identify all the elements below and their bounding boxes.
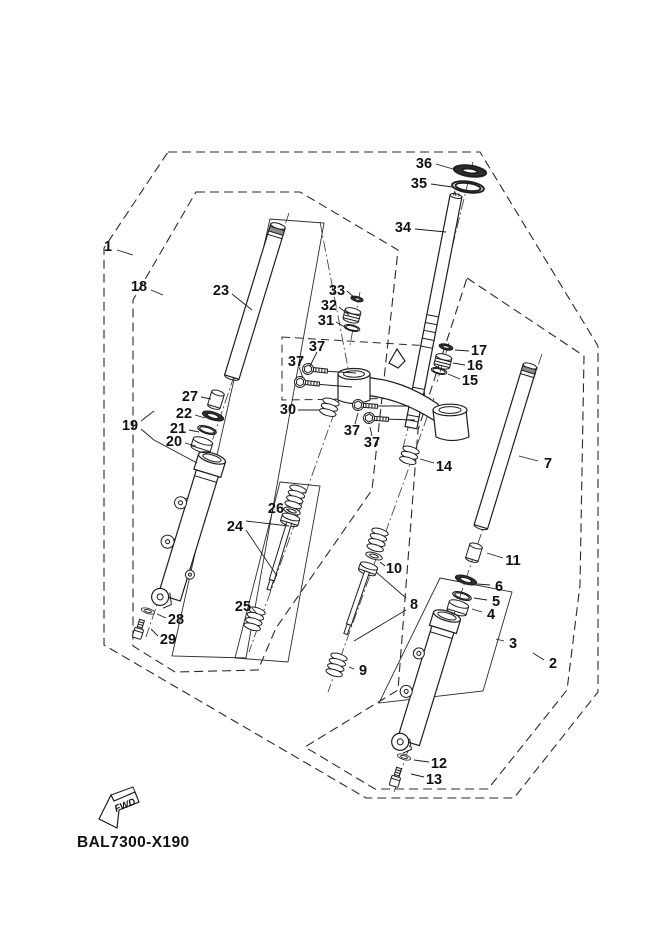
part-label-15: 15 [462, 373, 478, 389]
parts-diagram-page: FWD BAL7300-X190 11823272221201928292425… [0, 0, 661, 935]
leader-line-4 [472, 609, 482, 612]
part-28-gasket [141, 607, 156, 616]
part-label-1: 1 [104, 239, 112, 255]
leader-line-16 [453, 363, 465, 365]
part-label-25: 25 [235, 599, 251, 615]
leader-line-36 [436, 164, 453, 169]
part-label-12: 12 [431, 756, 447, 772]
leader-line-12 [414, 760, 429, 762]
clamp-fin [389, 349, 405, 368]
part-label-37: 37 [344, 423, 360, 439]
left-outer-tube-assembly [142, 446, 230, 614]
part-9-rebound-spring [325, 651, 348, 678]
part-22-oil-seal [201, 409, 224, 423]
part-label-23: 23 [213, 283, 229, 299]
part-label-22: 22 [176, 406, 192, 422]
leader-line-10 [380, 562, 385, 566]
left-fork-spring-end [284, 483, 307, 510]
part-label-27: 27 [182, 389, 198, 405]
part-label-35: 35 [411, 176, 427, 192]
leader-line-8 [354, 610, 406, 641]
fwd-label: FWD [113, 796, 137, 814]
part-7-inner-tube [473, 362, 537, 532]
part-label-29: 29 [160, 632, 176, 648]
part-37-pinch-bolt [302, 363, 328, 377]
part-label-28: 28 [168, 612, 184, 628]
part-label-34: 34 [395, 220, 411, 236]
part-label-9: 9 [359, 663, 367, 679]
leader-line-17 [455, 350, 469, 351]
part-label-2: 2 [549, 656, 557, 672]
part-label-3: 3 [509, 636, 517, 652]
part-15-o-ring [431, 366, 448, 376]
part-label-24: 24 [227, 519, 243, 535]
part-callouts: 1182327222120192829242526303132333737373… [104, 156, 557, 788]
leader-line-21 [189, 430, 199, 432]
leader-line-31 [336, 322, 350, 330]
part-label-26: 26 [268, 501, 284, 517]
part-label-13: 13 [426, 772, 442, 788]
part-37-pinch-bolt [294, 376, 320, 390]
part-6-oil-seal [454, 573, 477, 587]
part-8-damper-rod [337, 560, 378, 637]
leader-line-28 [157, 614, 166, 618]
part-label-6: 6 [495, 579, 503, 595]
part-32-spacer [342, 306, 361, 324]
leader-line-15 [448, 374, 460, 379]
part-label-16: 16 [467, 358, 483, 374]
part-37-pinch-bolt [363, 412, 389, 425]
part-label-37: 37 [309, 339, 325, 355]
leader-line-13 [411, 774, 424, 777]
leader-line-6 [477, 584, 490, 585]
part-11-bushing [465, 542, 483, 564]
part-27-bushing [207, 389, 225, 411]
leader-line-34 [415, 229, 446, 232]
part-label-33: 33 [329, 283, 345, 299]
part-12-gasket [397, 753, 412, 762]
leader-line-5 [474, 598, 487, 600]
part-label-8: 8 [410, 597, 418, 613]
part-13-bolt [389, 767, 403, 788]
diagram-code: BAL7300-X190 [77, 834, 190, 851]
part-35-ball-race [451, 179, 484, 194]
part-label-17: 17 [471, 343, 487, 359]
leader-line-9 [349, 667, 354, 669]
leader-line-29 [151, 629, 158, 636]
part-label-31: 31 [318, 313, 334, 329]
leader-line-11 [487, 553, 503, 558]
leader-line-7 [519, 456, 538, 461]
right-fork-spring-end [366, 526, 389, 553]
part-label-10: 10 [386, 561, 402, 577]
part-label-32: 32 [321, 298, 337, 314]
leader-line-19 [141, 429, 154, 440]
part-label-36: 36 [416, 156, 432, 172]
leader-line-3 [496, 639, 504, 641]
part-label-7: 7 [544, 456, 552, 472]
leader-line-19 [141, 411, 154, 421]
part-23-inner-tube [224, 221, 286, 381]
part-29-bolt [132, 619, 146, 640]
fwd-arrow: FWD [99, 787, 139, 828]
front-fork-exploded-diagram: FWD BAL7300-X190 11823272221201928292425… [0, 0, 661, 935]
leader-line-2 [533, 653, 544, 660]
part-label-4: 4 [487, 607, 495, 623]
region-outline-1 [104, 152, 598, 798]
part-17-seal [439, 343, 454, 352]
leader-line-14 [420, 459, 434, 463]
part-label-37: 37 [288, 354, 304, 370]
leader-line-18 [151, 290, 163, 295]
part-36-bearing-cover [453, 163, 486, 178]
leader-line-35 [431, 184, 452, 187]
part-label-14: 14 [436, 459, 452, 475]
part-label-18: 18 [131, 279, 147, 295]
part-label-37: 37 [364, 435, 380, 451]
part-label-11: 11 [505, 553, 520, 569]
part-21-ring [197, 424, 217, 436]
part-3-outer-tube [383, 605, 462, 758]
leader-line-1 [117, 250, 133, 255]
part-label-19: 19 [122, 418, 138, 434]
part-label-30: 30 [280, 402, 296, 418]
